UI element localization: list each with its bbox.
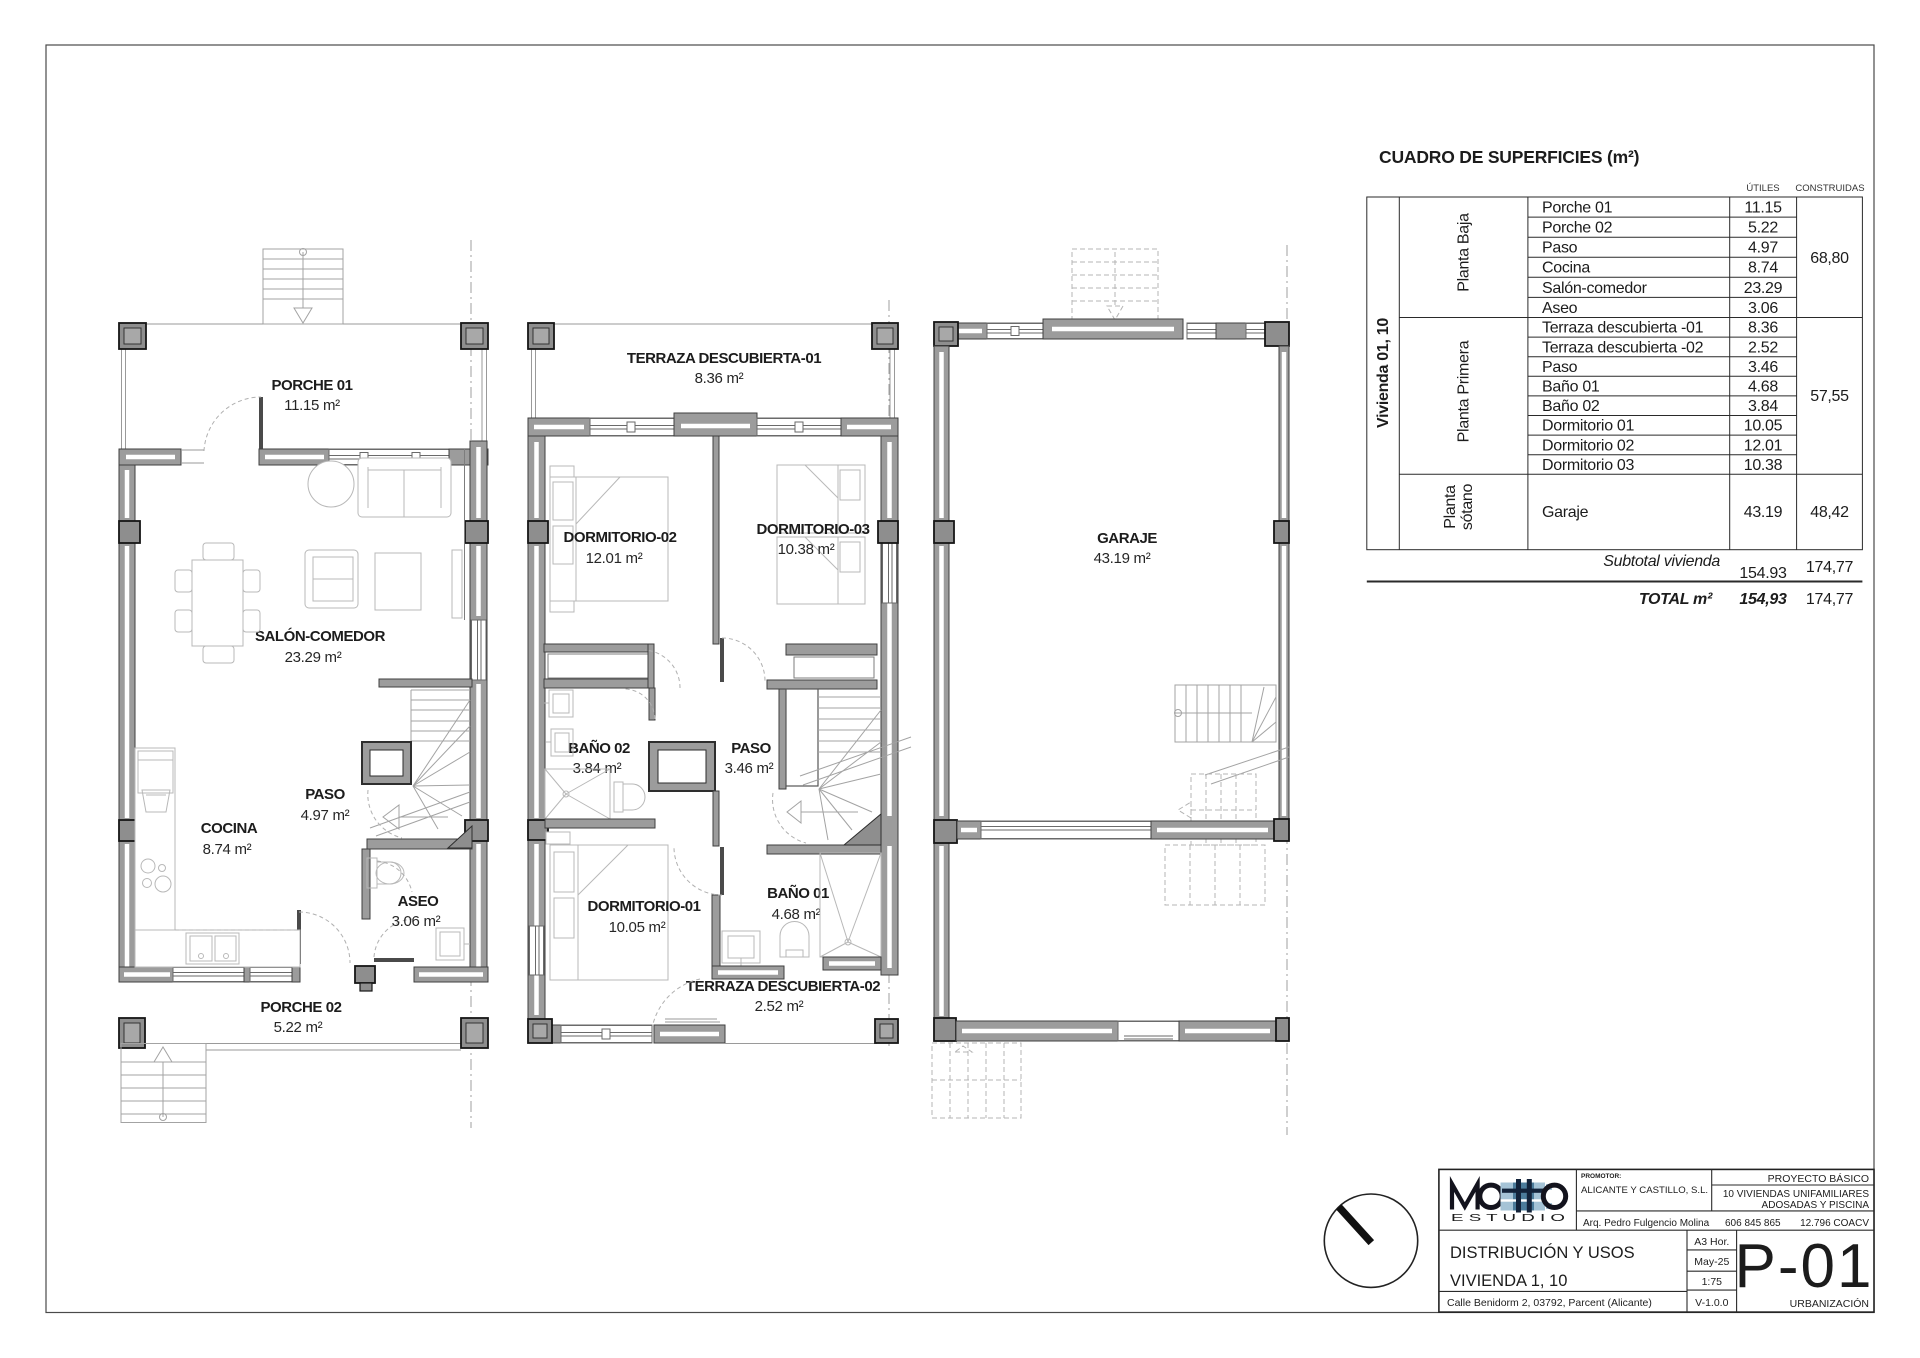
svg-text:Calle Benidorm 2, 03792, Parce: Calle Benidorm 2, 03792, Parcent (Alican… <box>1447 1297 1652 1309</box>
svg-text:ADOSADAS Y PISCINA: ADOSADAS Y PISCINA <box>1762 1200 1870 1211</box>
svg-text:10.38 m²: 10.38 m² <box>778 541 835 558</box>
svg-text:DORMITORIO-02: DORMITORIO-02 <box>563 529 676 546</box>
svg-text:174,77: 174,77 <box>1806 559 1854 576</box>
svg-text:154.93: 154.93 <box>1739 565 1787 582</box>
svg-text:68,80: 68,80 <box>1810 250 1849 267</box>
svg-text:5.22 m²: 5.22 m² <box>274 1019 323 1036</box>
svg-text:Dormitorio 01: Dormitorio 01 <box>1542 418 1635 435</box>
svg-text:SALÓN-COMEDOR: SALÓN-COMEDOR <box>255 627 386 645</box>
svg-text:10 VIVIENDAS UNIFAMILIARES: 10 VIVIENDAS UNIFAMILIARES <box>1723 1189 1869 1200</box>
svg-text:P-01: P-01 <box>1735 1232 1874 1301</box>
svg-text:BAÑO 02: BAÑO 02 <box>568 739 630 757</box>
svg-text:V-1.0.0: V-1.0.0 <box>1695 1297 1728 1309</box>
svg-text:E S T U D I O: E S T U D I O <box>1451 1213 1565 1224</box>
svg-text:Planta: Planta <box>1442 485 1459 529</box>
svg-text:PROYECTO BÁSICO: PROYECTO BÁSICO <box>1768 1172 1869 1185</box>
svg-text:Subtotal vivienda: Subtotal vivienda <box>1603 553 1720 570</box>
svg-text:8.74 m²: 8.74 m² <box>203 841 252 858</box>
svg-text:PASO: PASO <box>731 740 771 757</box>
svg-text:48,42: 48,42 <box>1810 504 1849 521</box>
svg-text:DORMITORIO-03: DORMITORIO-03 <box>756 521 869 538</box>
svg-text:PROMOTOR:: PROMOTOR: <box>1581 1173 1621 1180</box>
svg-text:11.15 m²: 11.15 m² <box>284 397 340 414</box>
svg-text:3.46: 3.46 <box>1748 359 1778 376</box>
svg-text:10.05 m²: 10.05 m² <box>609 919 666 936</box>
svg-text:8.74: 8.74 <box>1748 260 1778 277</box>
svg-text:Porche 01: Porche 01 <box>1542 200 1613 217</box>
svg-text:154,93: 154,93 <box>1739 591 1787 608</box>
svg-text:3.46 m²: 3.46 m² <box>725 760 774 777</box>
svg-text:5.22: 5.22 <box>1748 220 1778 237</box>
svg-text:2.52: 2.52 <box>1748 339 1778 356</box>
svg-text:4.97: 4.97 <box>1748 240 1778 257</box>
svg-text:Arq. Pedro Fulgencio Molina: Arq. Pedro Fulgencio Molina <box>1583 1218 1710 1229</box>
svg-text:A3 Hor.: A3 Hor. <box>1694 1236 1729 1248</box>
svg-text:57,55: 57,55 <box>1810 388 1849 405</box>
svg-text:Paso: Paso <box>1542 359 1578 376</box>
svg-text:4.97 m²: 4.97 m² <box>301 807 350 824</box>
svg-text:3.06 m²: 3.06 m² <box>392 913 441 930</box>
svg-text:12.01 m²: 12.01 m² <box>586 550 643 567</box>
svg-text:10.05: 10.05 <box>1744 418 1783 435</box>
svg-text:TERRAZA DESCUBIERTA-01: TERRAZA DESCUBIERTA-01 <box>627 350 821 367</box>
svg-text:Garaje: Garaje <box>1542 504 1589 521</box>
svg-text:Planta Baja: Planta Baja <box>1456 213 1473 292</box>
svg-text:8.36 m²: 8.36 m² <box>695 370 744 387</box>
svg-text:ASEO: ASEO <box>398 893 439 910</box>
svg-text:Porche 02: Porche 02 <box>1542 220 1613 237</box>
svg-text:Salón-comedor: Salón-comedor <box>1542 280 1648 297</box>
svg-text:Vivienda 01, 10: Vivienda 01, 10 <box>1375 318 1392 428</box>
svg-text:174,77: 174,77 <box>1806 591 1854 608</box>
svg-text:COCINA: COCINA <box>201 820 258 837</box>
svg-text:Terraza descubierta -02: Terraza descubierta -02 <box>1542 339 1704 356</box>
svg-text:3.06: 3.06 <box>1748 300 1778 317</box>
svg-text:sótano: sótano <box>1459 483 1476 530</box>
svg-text:DISTRIBUCIÓN Y USOS: DISTRIBUCIÓN Y USOS <box>1450 1243 1635 1262</box>
svg-text:ALICANTE Y CASTILLO, S.L.: ALICANTE Y CASTILLO, S.L. <box>1581 1185 1708 1196</box>
svg-text:Terraza descubierta -01: Terraza descubierta -01 <box>1542 320 1704 337</box>
svg-text:PORCHE 02: PORCHE 02 <box>261 999 342 1016</box>
svg-text:3.84: 3.84 <box>1748 398 1778 415</box>
svg-text:43.19: 43.19 <box>1744 504 1783 521</box>
svg-text:Planta Primera: Planta Primera <box>1456 340 1473 442</box>
svg-text:Cocina: Cocina <box>1542 260 1590 277</box>
svg-text:CUADRO DE SUPERFICIES (m²): CUADRO DE SUPERFICIES (m²) <box>1379 147 1639 167</box>
svg-text:CONSTRUIDAS: CONSTRUIDAS <box>1795 183 1864 194</box>
svg-text:23.29 m²: 23.29 m² <box>285 649 342 666</box>
svg-text:GARAJE: GARAJE <box>1097 530 1157 547</box>
svg-text:4.68: 4.68 <box>1748 379 1778 396</box>
svg-text:VIVIENDA 1, 10: VIVIENDA 1, 10 <box>1450 1272 1567 1290</box>
svg-text:May-25: May-25 <box>1694 1256 1729 1268</box>
svg-text:TOTAL m²: TOTAL m² <box>1639 591 1713 608</box>
svg-text:DORMITORIO-01: DORMITORIO-01 <box>587 898 700 915</box>
svg-text:23.29: 23.29 <box>1744 280 1783 297</box>
svg-text:Baño 01: Baño 01 <box>1542 379 1600 396</box>
svg-text:Aseo: Aseo <box>1542 300 1578 317</box>
svg-text:8.36: 8.36 <box>1748 320 1778 337</box>
svg-text:1:75: 1:75 <box>1702 1276 1723 1288</box>
svg-text:PASO: PASO <box>305 786 345 803</box>
svg-text:606 845 865: 606 845 865 <box>1725 1218 1781 1229</box>
svg-text:ÚTILES: ÚTILES <box>1746 183 1779 194</box>
svg-text:Paso: Paso <box>1542 240 1578 257</box>
svg-text:43.19 m²: 43.19 m² <box>1094 550 1151 567</box>
svg-text:Baño 02: Baño 02 <box>1542 398 1600 415</box>
svg-text:Dormitorio 03: Dormitorio 03 <box>1542 457 1635 474</box>
svg-text:PORCHE 01: PORCHE 01 <box>272 377 353 394</box>
svg-text:12.796 COACV: 12.796 COACV <box>1800 1218 1869 1229</box>
svg-text:12.01: 12.01 <box>1744 437 1783 454</box>
svg-text:10.38: 10.38 <box>1744 457 1783 474</box>
svg-text:2.52 m²: 2.52 m² <box>755 998 804 1015</box>
svg-text:TERRAZA DESCUBIERTA-02: TERRAZA DESCUBIERTA-02 <box>686 978 880 995</box>
svg-text:11.15: 11.15 <box>1744 200 1782 217</box>
svg-text:Dormitorio 02: Dormitorio 02 <box>1542 437 1635 454</box>
svg-text:URBANIZACIÓN: URBANIZACIÓN <box>1790 1297 1869 1310</box>
svg-text:4.68 m²: 4.68 m² <box>772 906 821 923</box>
